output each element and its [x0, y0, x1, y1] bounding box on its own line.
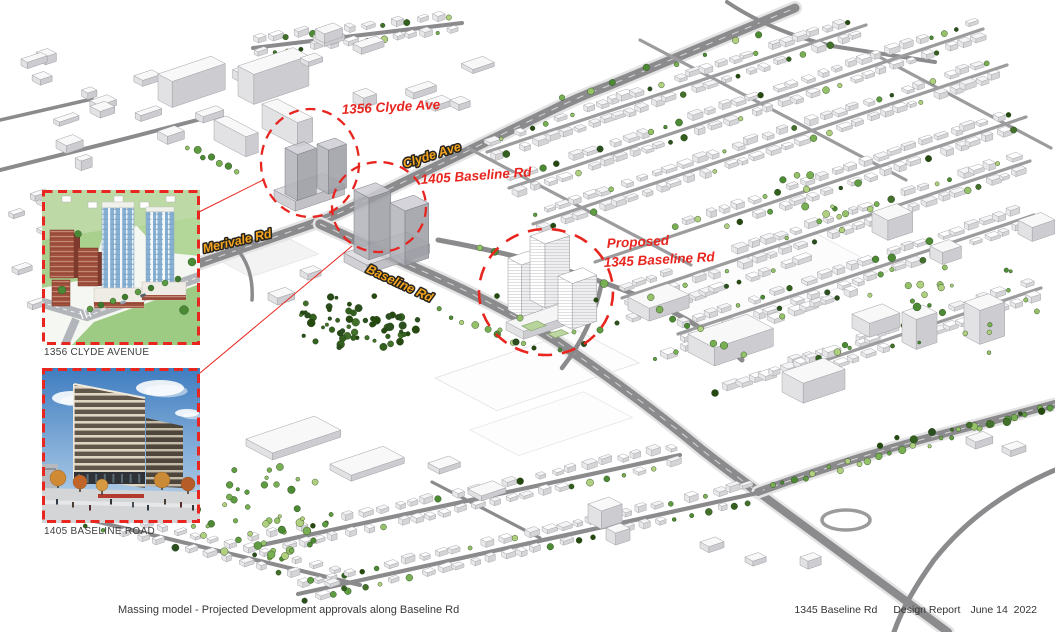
- page: Clyde Ave Merivale Rd Baseline Rd 1356 C…: [0, 0, 1055, 632]
- inset-caption-1405: 1405 BASELINE ROAD: [44, 526, 155, 537]
- leader-line-1356-clyde: [199, 180, 263, 212]
- figure-caption: Massing model - Projected Development ap…: [118, 604, 459, 616]
- inset-border-1405: [42, 368, 200, 523]
- inset-1356-clyde: [42, 190, 200, 345]
- report-footer: 1345 Baseline Rd Design Report June 14 2…: [794, 604, 1037, 616]
- footer-date: June 14 2022: [970, 604, 1037, 616]
- inset-caption-1356: 1356 CLYDE AVENUE: [44, 347, 149, 358]
- footer-doc-title: Design Report: [893, 604, 960, 616]
- inset-border-1356: [42, 190, 200, 345]
- footer-project: 1345 Baseline Rd: [794, 604, 877, 616]
- inset-1405-baseline: [42, 368, 200, 523]
